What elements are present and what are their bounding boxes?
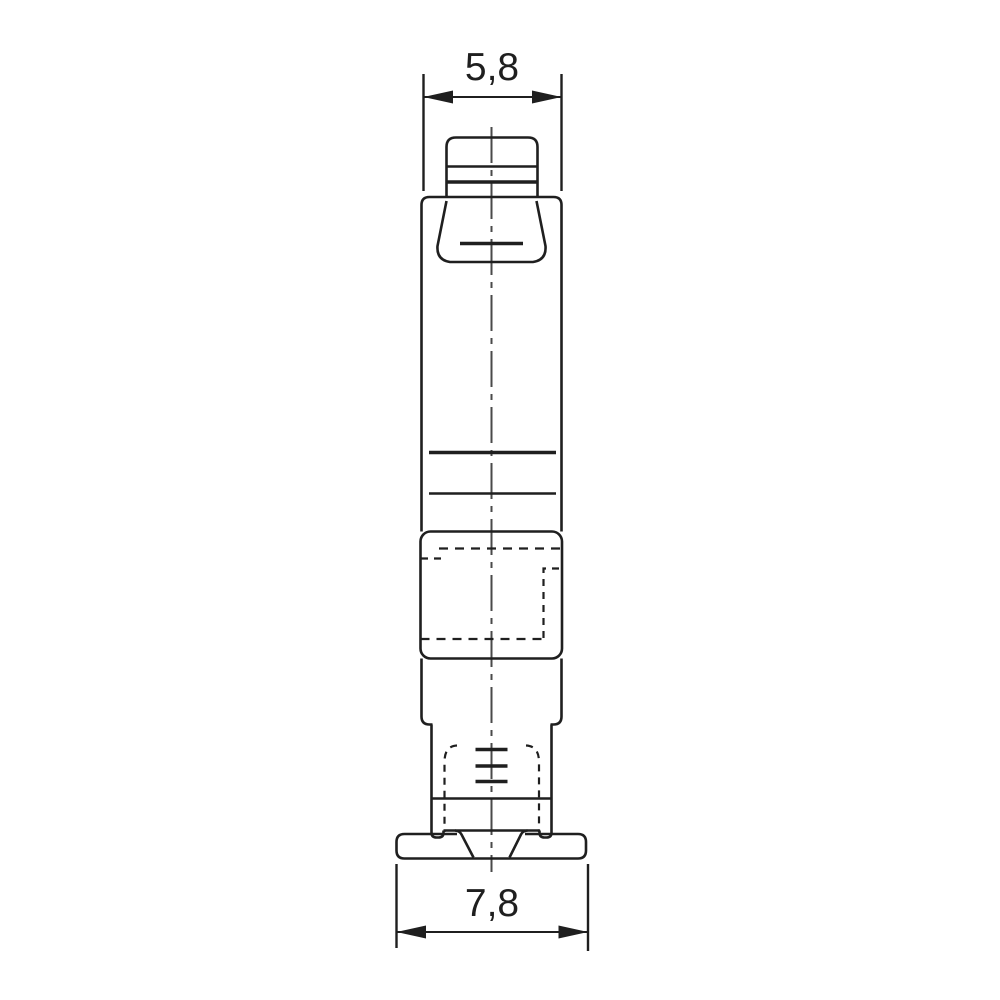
hidden-line-right-step bbox=[544, 569, 560, 639]
bottom-arrow-left-icon bbox=[397, 926, 427, 939]
top-arrow-right-icon bbox=[532, 91, 562, 104]
neck-right-slant bbox=[510, 831, 528, 858]
technical-drawing-canvas: 5,8 bbox=[0, 0, 1000, 1000]
hidden-bore-right bbox=[526, 746, 539, 833]
top-dimension: 5,8 bbox=[424, 46, 562, 191]
lower-body-right bbox=[551, 659, 562, 725]
top-dimension-label: 5,8 bbox=[465, 46, 519, 89]
hidden-bore-left bbox=[445, 746, 458, 833]
narrow-section-right bbox=[540, 725, 552, 838]
middle-housing-hidden-lines bbox=[421, 549, 561, 640]
bottom-dimension: 7,8 bbox=[397, 864, 589, 951]
neck-left-slant bbox=[455, 831, 474, 858]
bottom-arrow-right-icon bbox=[559, 926, 589, 939]
technical-drawing-page: 5,8 bbox=[0, 0, 1000, 1000]
bottom-dimension-label: 7,8 bbox=[465, 882, 519, 925]
narrow-section-left bbox=[432, 725, 444, 838]
lower-body-left bbox=[422, 659, 433, 725]
top-arrow-left-icon bbox=[424, 91, 454, 104]
